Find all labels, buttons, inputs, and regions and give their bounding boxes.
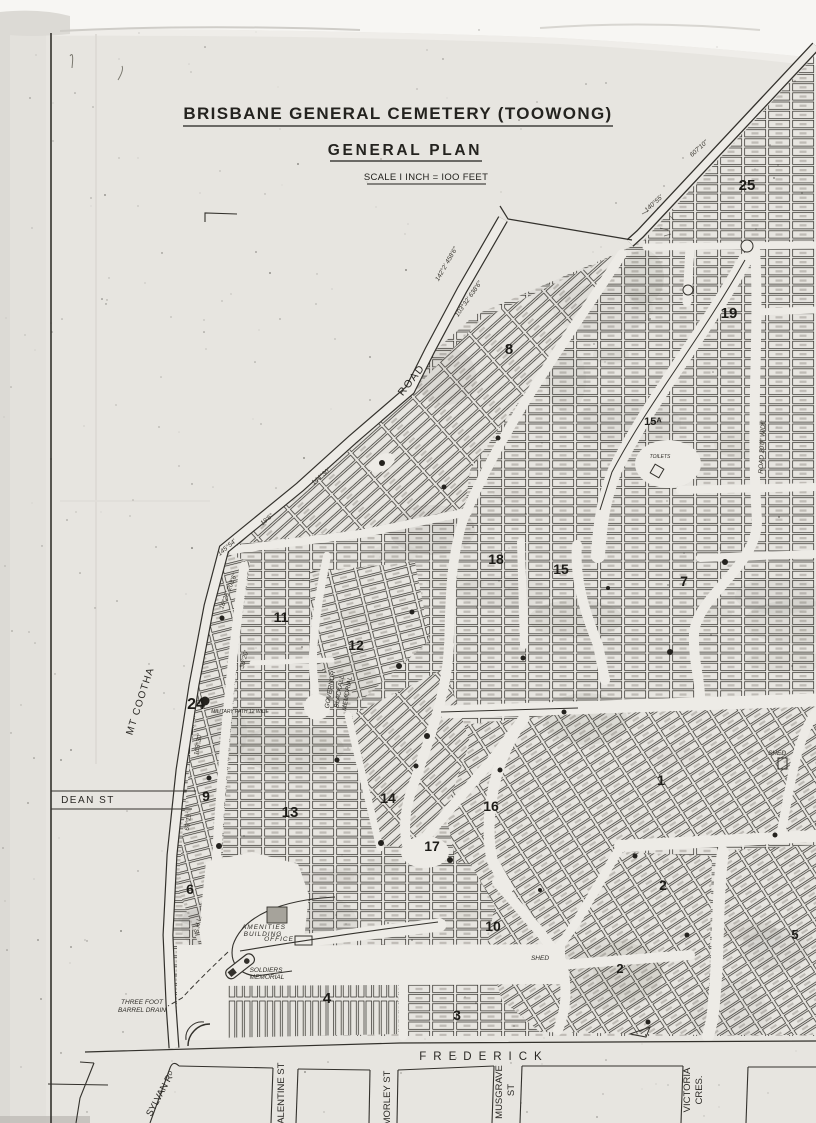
svg-text:VICTORIA: VICTORIA (682, 1067, 693, 1112)
svg-text:ST: ST (506, 1084, 517, 1096)
svg-text:MILITARY PATH 12 WIDE: MILITARY PATH 12 WIDE (211, 709, 269, 715)
svg-text:CRES.: CRES. (694, 1075, 705, 1104)
svg-text:2: 2 (659, 877, 667, 893)
svg-text:9: 9 (202, 788, 210, 804)
svg-text:16: 16 (483, 798, 499, 814)
svg-text:1: 1 (657, 772, 665, 788)
svg-text:4: 4 (323, 990, 332, 1007)
svg-text:MORLEY ST: MORLEY ST (382, 1070, 393, 1123)
svg-text:15: 15 (553, 561, 569, 577)
svg-text:8: 8 (505, 341, 513, 358)
svg-text:BARREL DRAIN: BARREL DRAIN (118, 1007, 166, 1014)
svg-text:24: 24 (187, 696, 205, 713)
svg-text:2: 2 (616, 961, 623, 976)
svg-text:17: 17 (424, 838, 440, 854)
svg-text:FREDERICK: FREDERICK (419, 1051, 548, 1063)
svg-text:BRISBANE GENERAL CEMETERY (: BRISBANE GENERAL CEMETERY (TOOWONG) (183, 104, 612, 123)
svg-text:SOLDIERS: SOLDIERS (250, 967, 284, 974)
svg-text:3: 3 (453, 1007, 461, 1023)
svg-text:13: 13 (282, 804, 299, 821)
svg-text:14: 14 (380, 790, 396, 806)
svg-text:VALENTINE ST: VALENTINE ST (276, 1062, 287, 1123)
svg-text:18: 18 (488, 551, 504, 567)
svg-text:7: 7 (680, 573, 688, 589)
svg-text:AMENITIES: AMENITIES (241, 924, 286, 931)
svg-text:12: 12 (348, 637, 364, 653)
svg-text:19: 19 (721, 305, 738, 322)
svg-text:SHED: SHED (531, 955, 549, 962)
svg-text:10: 10 (485, 918, 501, 934)
svg-text:11: 11 (274, 609, 289, 625)
svg-text:5: 5 (791, 927, 798, 942)
svg-text:OFFICE: OFFICE (264, 936, 294, 943)
svg-text:SCALE I INCH = IOO FEET: SCALE I INCH = IOO FEET (364, 172, 488, 183)
svg-text:MUSGRAVE: MUSGRAVE (494, 1065, 505, 1119)
svg-text:SHED: SHED (768, 750, 786, 757)
svg-text:DEAN ST: DEAN ST (61, 795, 115, 806)
svg-text:TOILETS: TOILETS (650, 454, 671, 460)
svg-text:25: 25 (739, 177, 756, 194)
svg-text:GENERAL PLAN: GENERAL PLAN (328, 142, 482, 159)
svg-text:6: 6 (186, 881, 194, 897)
svg-text:THREE FOOT: THREE FOOT (121, 999, 164, 1006)
svg-text:MEMORIAL: MEMORIAL (250, 974, 285, 981)
